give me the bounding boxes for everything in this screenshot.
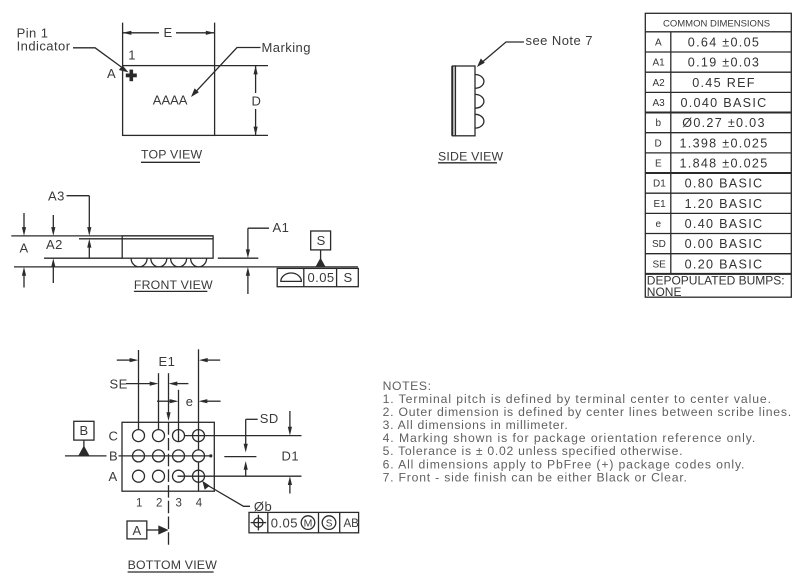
svg-text:C: C xyxy=(109,428,119,443)
svg-text:A1: A1 xyxy=(273,220,290,235)
svg-text:7. Front - side finish can be: 7. Front - side finish can be either Bla… xyxy=(383,470,688,484)
svg-text:e: e xyxy=(186,394,194,409)
svg-text:E: E xyxy=(655,159,662,170)
svg-text:0.05: 0.05 xyxy=(308,270,335,285)
svg-text:AAAA: AAAA xyxy=(153,92,188,107)
svg-text:1: 1 xyxy=(128,47,136,62)
svg-text:D: D xyxy=(655,138,662,149)
svg-text:E: E xyxy=(164,25,173,40)
svg-text:D: D xyxy=(252,94,262,109)
svg-text:3: 3 xyxy=(176,497,182,509)
svg-text:1.848 ±0.025: 1.848 ±0.025 xyxy=(679,157,768,171)
svg-text:COMMON DIMENSIONS: COMMON DIMENSIONS xyxy=(663,19,770,30)
svg-text:S: S xyxy=(344,270,353,285)
svg-text:M: M xyxy=(304,517,313,529)
svg-text:SIDE VIEW: SIDE VIEW xyxy=(438,150,504,164)
svg-text:NOTES:: NOTES: xyxy=(383,379,432,393)
svg-text:0.19 ±0.03: 0.19 ±0.03 xyxy=(688,56,760,70)
svg-text:2: 2 xyxy=(156,497,162,509)
svg-text:see Note 7: see Note 7 xyxy=(526,33,593,48)
svg-text:E1: E1 xyxy=(159,354,176,369)
svg-text:NONE: NONE xyxy=(647,285,682,299)
svg-text:A: A xyxy=(20,241,29,256)
svg-text:AB: AB xyxy=(344,518,360,530)
svg-text:B: B xyxy=(80,423,89,438)
svg-text:0.64 ±0.05: 0.64 ±0.05 xyxy=(688,36,760,50)
svg-text:D1: D1 xyxy=(282,449,300,464)
svg-text:1. Terminal pitch is defined b: 1. Terminal pitch is defined by terminal… xyxy=(383,392,772,406)
svg-text:TOP VIEW: TOP VIEW xyxy=(141,148,202,162)
svg-text:E1: E1 xyxy=(654,199,667,210)
svg-text:0.040 BASIC: 0.040 BASIC xyxy=(680,96,767,110)
svg-text:5. Tolerance is ± 0.02 unless: 5. Tolerance is ± 0.02 unless specified … xyxy=(383,444,684,458)
svg-text:A3: A3 xyxy=(653,98,666,109)
svg-text:0.05: 0.05 xyxy=(271,515,298,530)
svg-text:0.40 BASIC: 0.40 BASIC xyxy=(685,217,764,231)
svg-text:Øb: Øb xyxy=(254,499,272,514)
svg-text:1.20 BASIC: 1.20 BASIC xyxy=(685,197,764,211)
svg-text:4: 4 xyxy=(196,497,203,509)
svg-text:A1: A1 xyxy=(653,58,666,69)
svg-text:b: b xyxy=(656,118,662,129)
svg-text:0.00 BASIC: 0.00 BASIC xyxy=(685,237,764,251)
svg-text:4. Marking shown is for packag: 4. Marking shown is for package orientat… xyxy=(383,431,757,445)
svg-text:0.20 BASIC: 0.20 BASIC xyxy=(685,257,764,271)
svg-text:S: S xyxy=(326,518,333,529)
svg-text:FRONT VIEW: FRONT VIEW xyxy=(134,278,213,292)
svg-text:0.80 BASIC: 0.80 BASIC xyxy=(685,177,764,191)
svg-text:Marking: Marking xyxy=(262,40,311,55)
svg-text:A3: A3 xyxy=(48,188,65,203)
svg-text:A: A xyxy=(109,469,118,484)
svg-text:SD: SD xyxy=(260,411,279,426)
svg-text:SD: SD xyxy=(652,239,666,250)
svg-text:1: 1 xyxy=(136,497,142,509)
svg-text:A2: A2 xyxy=(46,237,63,252)
svg-text:D1: D1 xyxy=(653,179,666,190)
svg-text:6. All dimensions apply to PbF: 6. All dimensions apply to PbFree (+) pa… xyxy=(383,457,746,471)
svg-text:e: e xyxy=(656,219,662,230)
svg-text:1.398 ±0.025: 1.398 ±0.025 xyxy=(679,136,768,150)
svg-text:B: B xyxy=(109,449,118,464)
svg-text:BOTTOM VIEW: BOTTOM VIEW xyxy=(128,558,218,572)
svg-text:A: A xyxy=(107,66,116,81)
svg-text:0.45 REF: 0.45 REF xyxy=(692,76,756,90)
svg-text:SE: SE xyxy=(110,376,128,391)
svg-text:S: S xyxy=(317,233,326,248)
svg-text:3. All dimensions in millimete: 3. All dimensions in millimeter. xyxy=(383,418,569,432)
svg-text:A2: A2 xyxy=(653,78,666,89)
svg-text:Indicator: Indicator xyxy=(17,38,71,53)
svg-text:SE: SE xyxy=(653,259,667,270)
svg-text:A: A xyxy=(133,523,142,538)
svg-text:2. Outer dimension is defined: 2. Outer dimension is defined by center … xyxy=(383,405,792,419)
svg-text:Ø0.27 ±0.03: Ø0.27 ±0.03 xyxy=(682,116,766,130)
svg-text:A: A xyxy=(655,38,662,49)
